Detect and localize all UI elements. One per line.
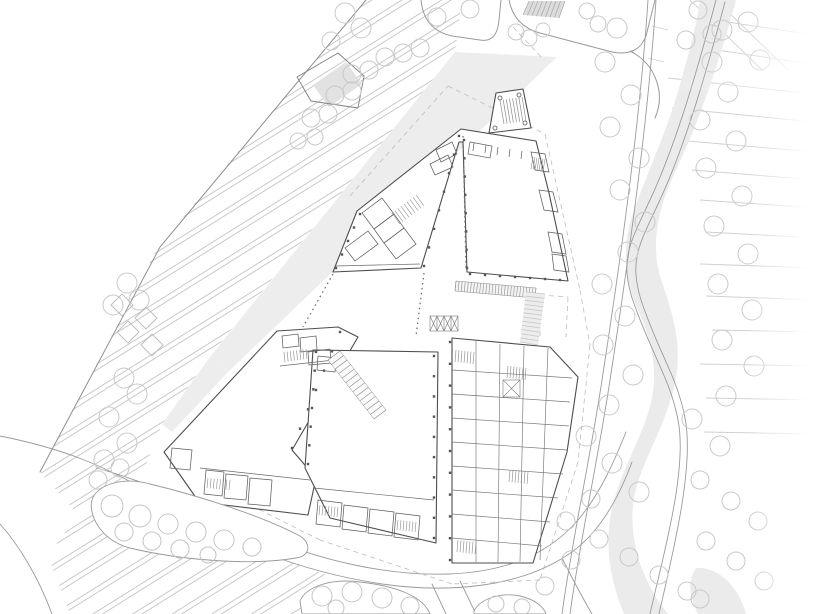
east-wing-crossed-room [503, 380, 520, 397]
river-pocket-southeast [690, 568, 746, 614]
river [608, 0, 736, 614]
building-wing-east [452, 338, 578, 563]
site-plan-figure [0, 0, 818, 614]
street-plot-north-c [630, 51, 659, 118]
courtyard-skylight-grid [430, 316, 458, 331]
site-plan-drawing [0, 0, 818, 614]
courtyard-ramp-band [520, 292, 545, 345]
tree-cluster-south-east [474, 595, 546, 614]
southwest-corner-road [0, 524, 52, 614]
courtyard-stair-band [455, 281, 536, 298]
north-plot-stair-strip [523, 1, 565, 18]
column-dots-east-wing [449, 341, 451, 561]
